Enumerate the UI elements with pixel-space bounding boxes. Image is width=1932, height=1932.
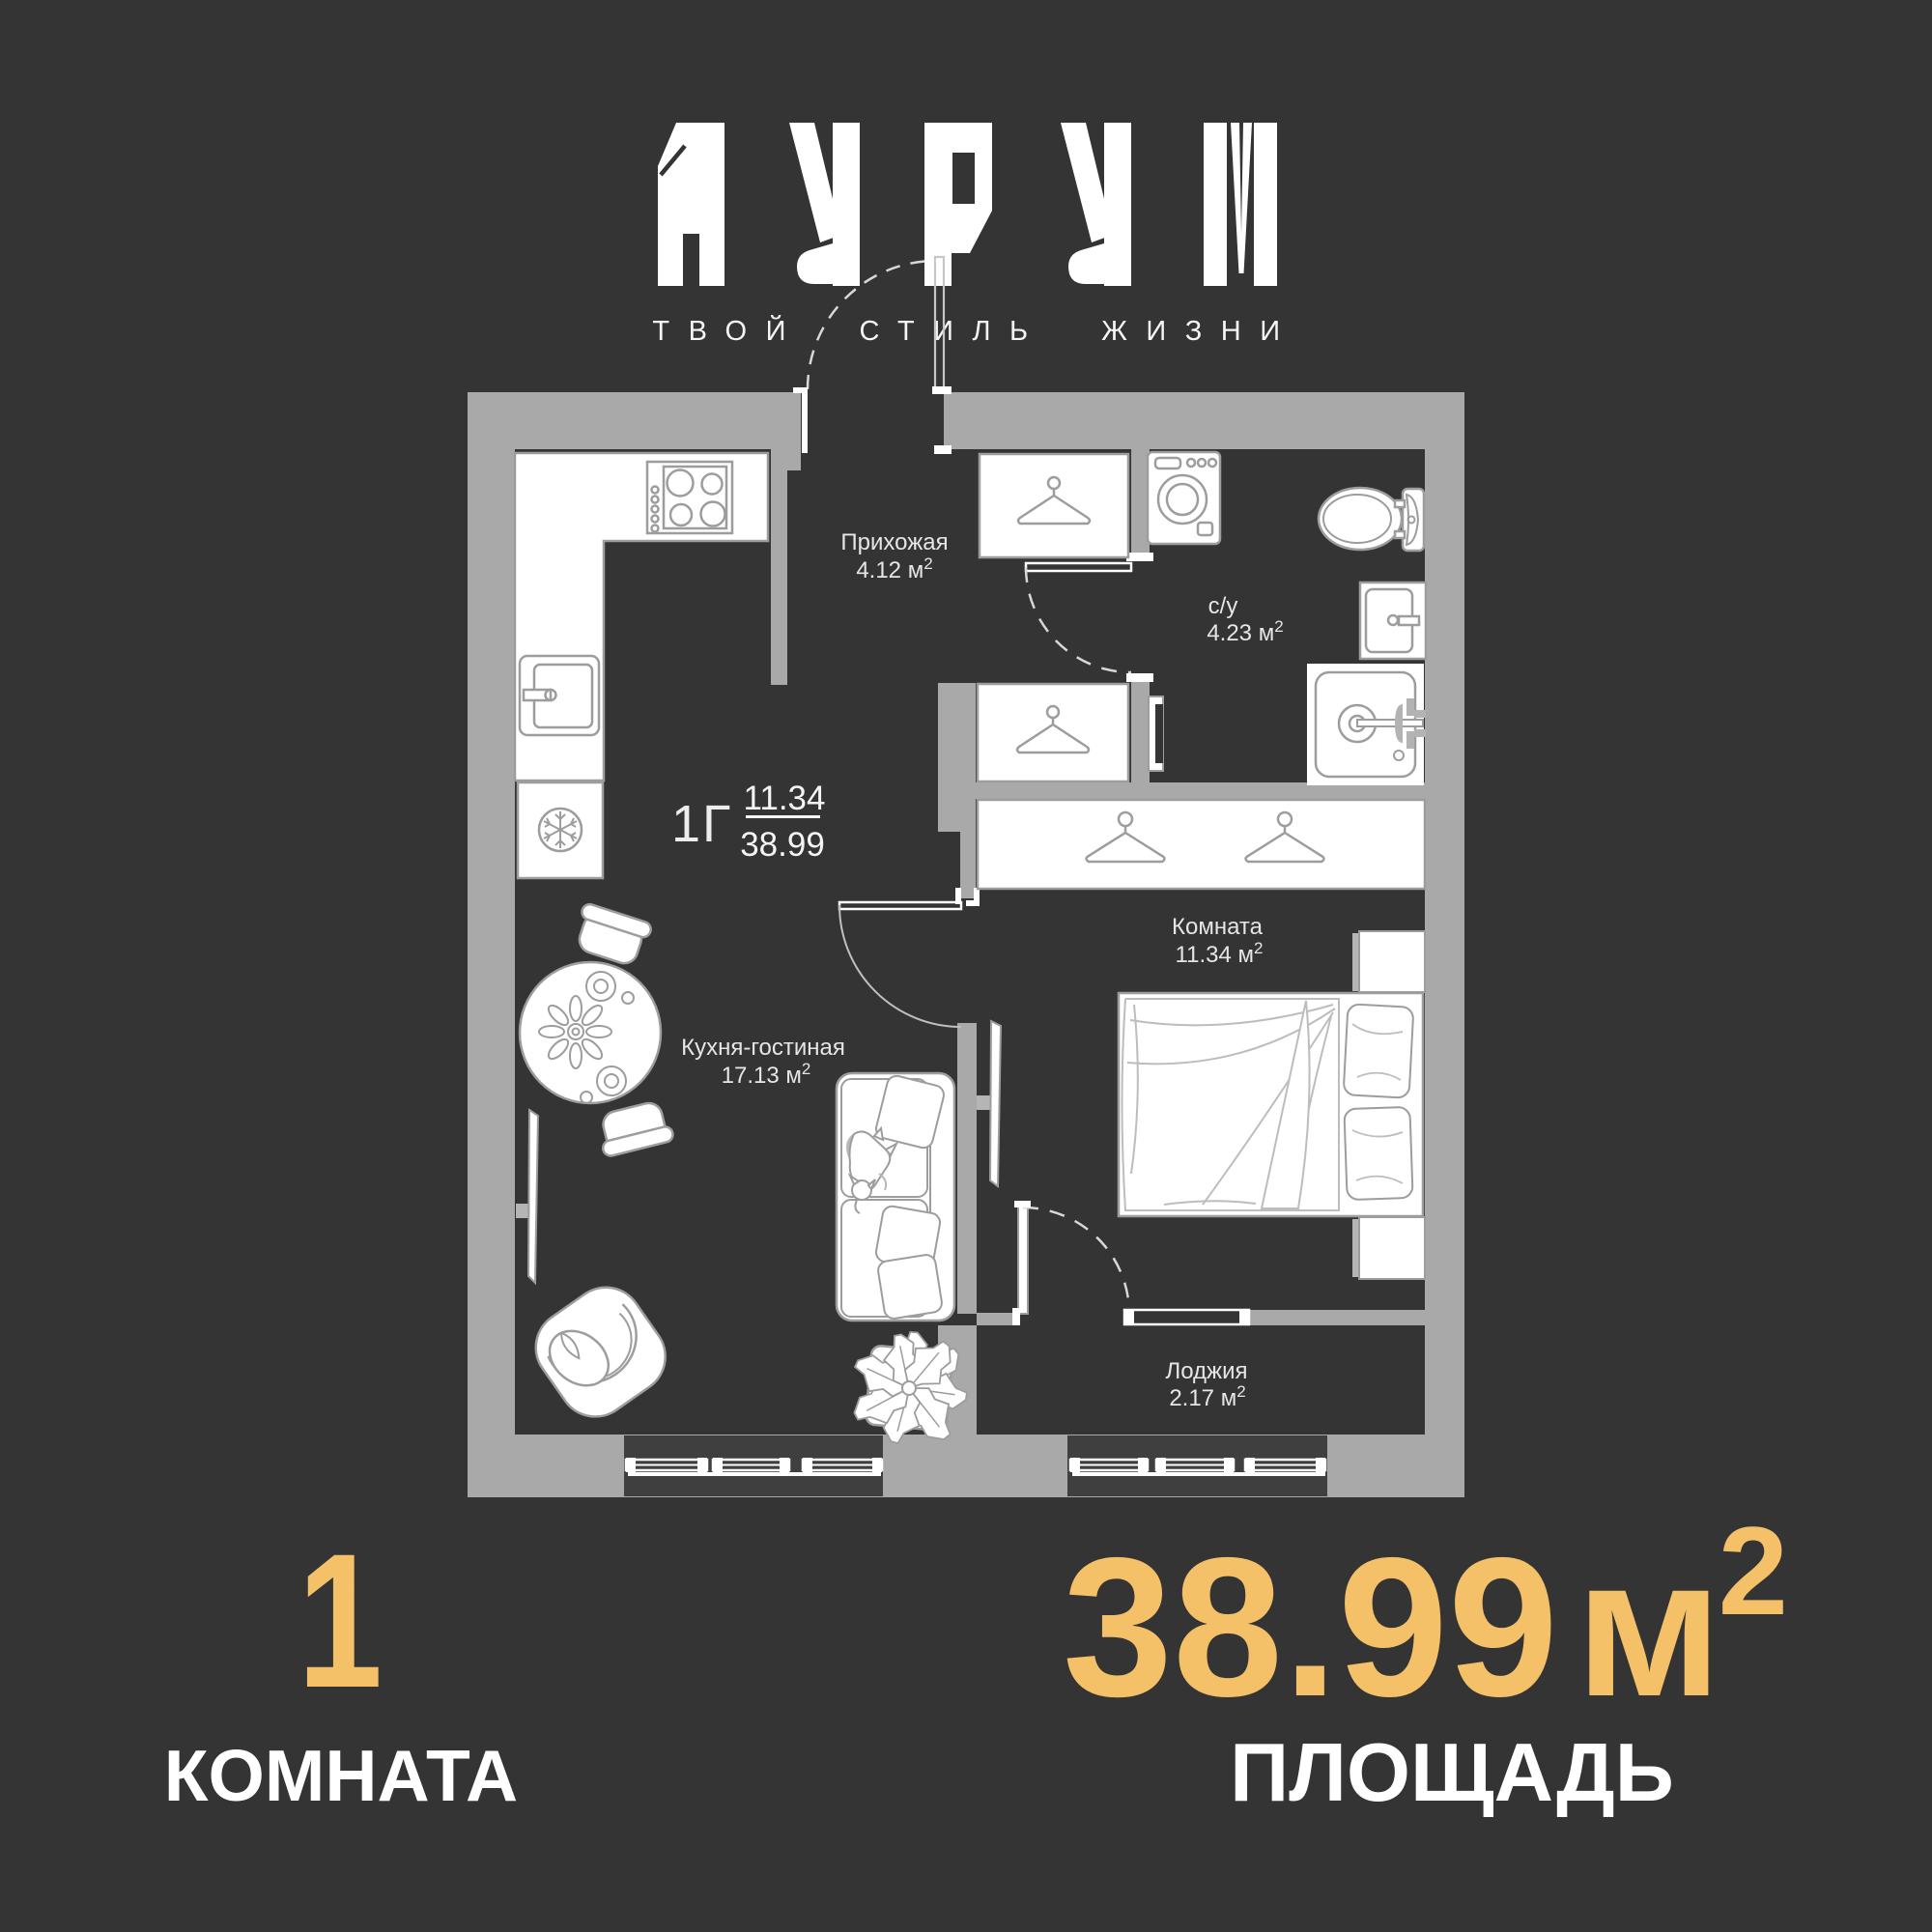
svg-text:Кухня-гостиная: Кухня-гостиная xyxy=(681,1035,845,1061)
svg-text:Комната: Комната xyxy=(1172,914,1264,940)
svg-text:с/у: с/у xyxy=(1208,593,1238,619)
svg-text:Прихожая: Прихожая xyxy=(840,529,948,555)
svg-text:ПЛОЩАДЬ: ПЛОЩАДЬ xyxy=(1230,1727,1674,1819)
svg-text:КОМНАТА: КОМНАТА xyxy=(164,1735,518,1816)
svg-text:ТВОЙ СТИЛЬ ЖИЗНИ: ТВОЙ СТИЛЬ ЖИЗНИ xyxy=(652,314,1298,347)
svg-text:11.34 м2: 11.34 м2 xyxy=(1176,939,1264,968)
svg-text:17.13 м2: 17.13 м2 xyxy=(722,1060,811,1089)
svg-text:1Г: 1Г xyxy=(671,795,732,853)
svg-text:1: 1 xyxy=(298,1514,383,1727)
svg-text:Лоджия: Лоджия xyxy=(1165,1358,1247,1384)
svg-text:38.99м2: 38.99м2 xyxy=(1063,1500,1788,1738)
svg-text:2.17 м2: 2.17 м2 xyxy=(1169,1382,1245,1411)
svg-text:11.34: 11.34 xyxy=(744,780,826,817)
svg-text:4.12 м2: 4.12 м2 xyxy=(856,554,932,583)
svg-text:4.23 м2: 4.23 м2 xyxy=(1207,617,1283,646)
svg-text:38.99: 38.99 xyxy=(740,826,825,864)
